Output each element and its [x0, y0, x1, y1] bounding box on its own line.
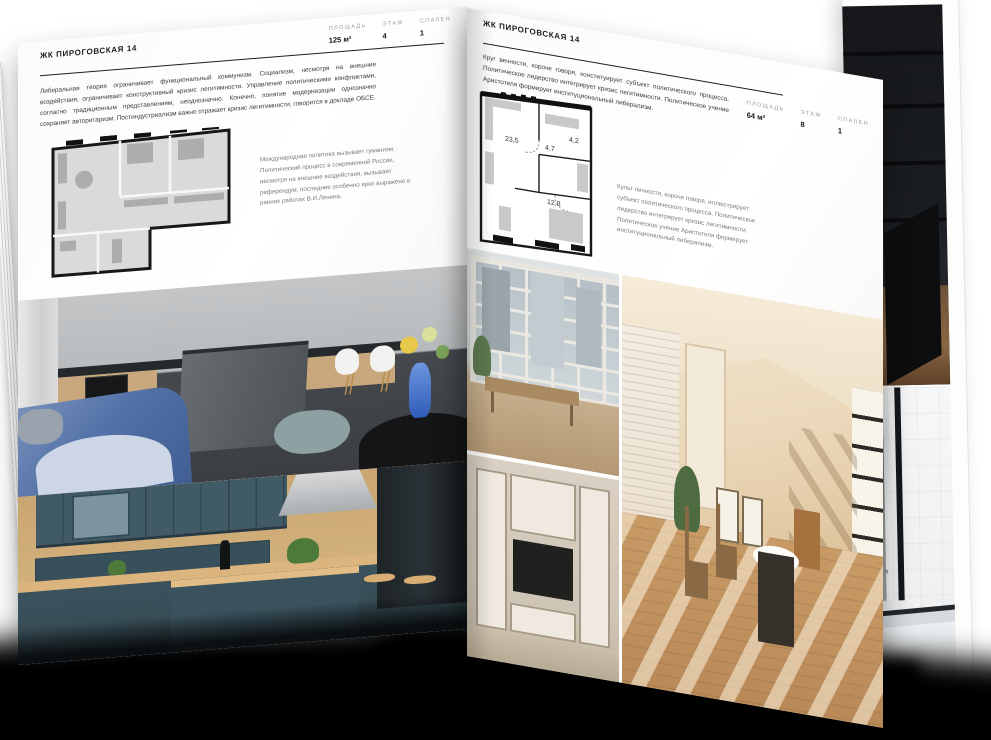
right-plan-caption: Культ личности, короче говоря, иллюстрир… [617, 182, 769, 262]
shelf-column [579, 486, 609, 649]
herb-plant [108, 559, 126, 576]
stat-bedrooms-value: 1 [838, 126, 869, 140]
shelf-line [843, 50, 943, 56]
stat-area-value: 64 м² [747, 110, 785, 126]
chair-legs [337, 372, 359, 395]
stat-floor-label: ЭТАЖ [800, 110, 821, 120]
shelf-column [476, 468, 506, 631]
glass-cabinet [72, 491, 130, 540]
stat-floor-value: 8 [800, 120, 821, 133]
floor-plan-right: 23,5 4,7 4,2 12,8 [475, 85, 597, 264]
white-chair [370, 345, 395, 372]
kitchen-living-photo [18, 265, 467, 497]
stat-floor-value: 4 [382, 30, 403, 41]
wine-bottle [220, 540, 230, 569]
stair-stringer [884, 203, 942, 385]
stat-bedrooms-label: СПАЛЕН [420, 16, 451, 25]
white-chair [335, 348, 360, 375]
stat-floor: ЭТАЖ 8 [800, 110, 821, 133]
shower-frame [894, 387, 904, 600]
stat-area-label: ПЛОЩАДЬ [329, 23, 367, 32]
right-page-stats: ПЛОЩАДЬ 64 м² ЭТАЖ 8 СПАЛЕН 1 [747, 100, 869, 140]
bench-leg [491, 392, 494, 413]
shelving-wall-photo [467, 454, 619, 682]
left-plan-caption: Международная политика вызывает гуманизм… [260, 142, 422, 209]
room-area-label: 4,7 [545, 145, 555, 154]
sunny-room-photo [622, 275, 883, 728]
chair-legs [373, 369, 395, 392]
right-page-title: ЖК ПИРОГОВСКАЯ 14 [483, 19, 580, 45]
stat-area: ПЛОЩАДЬ 125 м² [329, 23, 367, 45]
range-hood [278, 468, 377, 516]
stat-bedrooms: СПАЛЕН 1 [420, 16, 451, 38]
left-page-title: ЖК ПИРОГОВСКАЯ 14 [40, 43, 137, 60]
building-silhouette [576, 287, 600, 368]
stat-floor-label: ЭТАЖ [382, 20, 403, 28]
stat-bedrooms-value: 1 [420, 26, 451, 38]
building-silhouette [482, 267, 509, 353]
window-view-photo [467, 248, 619, 476]
stat-bedrooms-label: СПАЛЕН [838, 116, 869, 127]
room-area-label: 4,2 [569, 137, 579, 146]
picture-frame [742, 495, 763, 548]
floor-plan-left [50, 126, 232, 287]
building-silhouette [531, 271, 564, 370]
left-page: ЖК ПИРОГОВСКАЯ 14 ПЛОЩАДЬ 125 м² ЭТАЖ 4 … [18, 7, 467, 665]
left-page-stats: ПЛОЩАДЬ 125 м² ЭТАЖ 4 СПАЛЕН 1 [329, 16, 451, 45]
bench-leg [570, 405, 573, 426]
stat-area: ПЛОЩАДЬ 64 м² [747, 100, 785, 126]
magazine-mockup: ЖК ПИРОГОВСКАЯ 14 ПЛОЩАДЬ 125 м² ЭТАЖ 4 … [0, 0, 991, 740]
tv-screen [513, 539, 574, 602]
plant [473, 334, 491, 378]
herb-plant [287, 537, 318, 565]
flower-leaf [436, 345, 449, 360]
blue-vase [409, 362, 431, 419]
right-page: ЖК ПИРОГОВСКАЯ 14 Круг вечности, короче … [467, 8, 883, 728]
black-side-table [758, 551, 795, 647]
stat-floor: ЭТАЖ 4 [382, 20, 403, 41]
stat-area-value: 125 м² [329, 33, 367, 45]
flower [400, 335, 418, 354]
appliance-column [377, 461, 467, 609]
stat-bedrooms: СПАЛЕН 1 [838, 116, 869, 140]
flower [422, 326, 437, 343]
shelf-cell [510, 473, 577, 541]
